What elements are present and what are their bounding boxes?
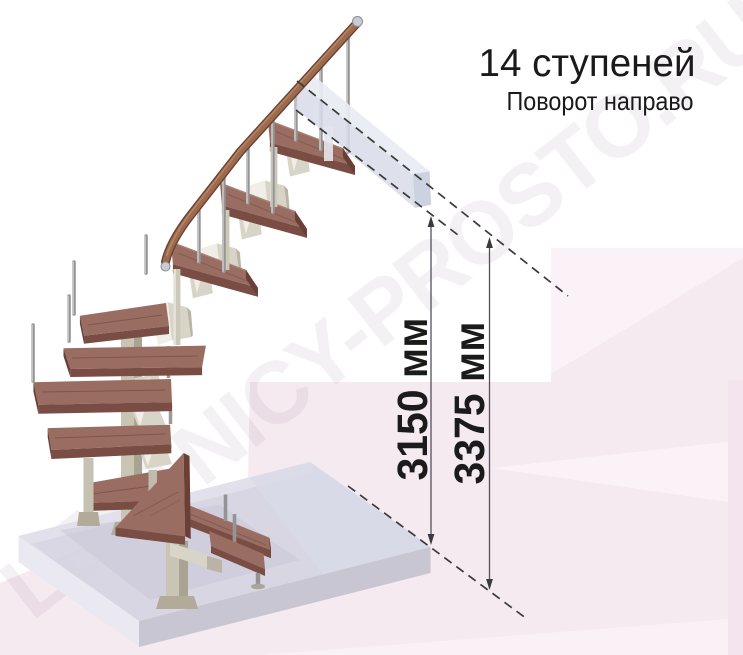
svg-text:Поворот направо: Поворот направо xyxy=(507,86,694,116)
svg-text:3150 мм: 3150 мм xyxy=(389,318,437,481)
svg-text:3375 мм: 3375 мм xyxy=(446,322,494,485)
svg-text:14 ступеней: 14 ступеней xyxy=(479,42,696,85)
